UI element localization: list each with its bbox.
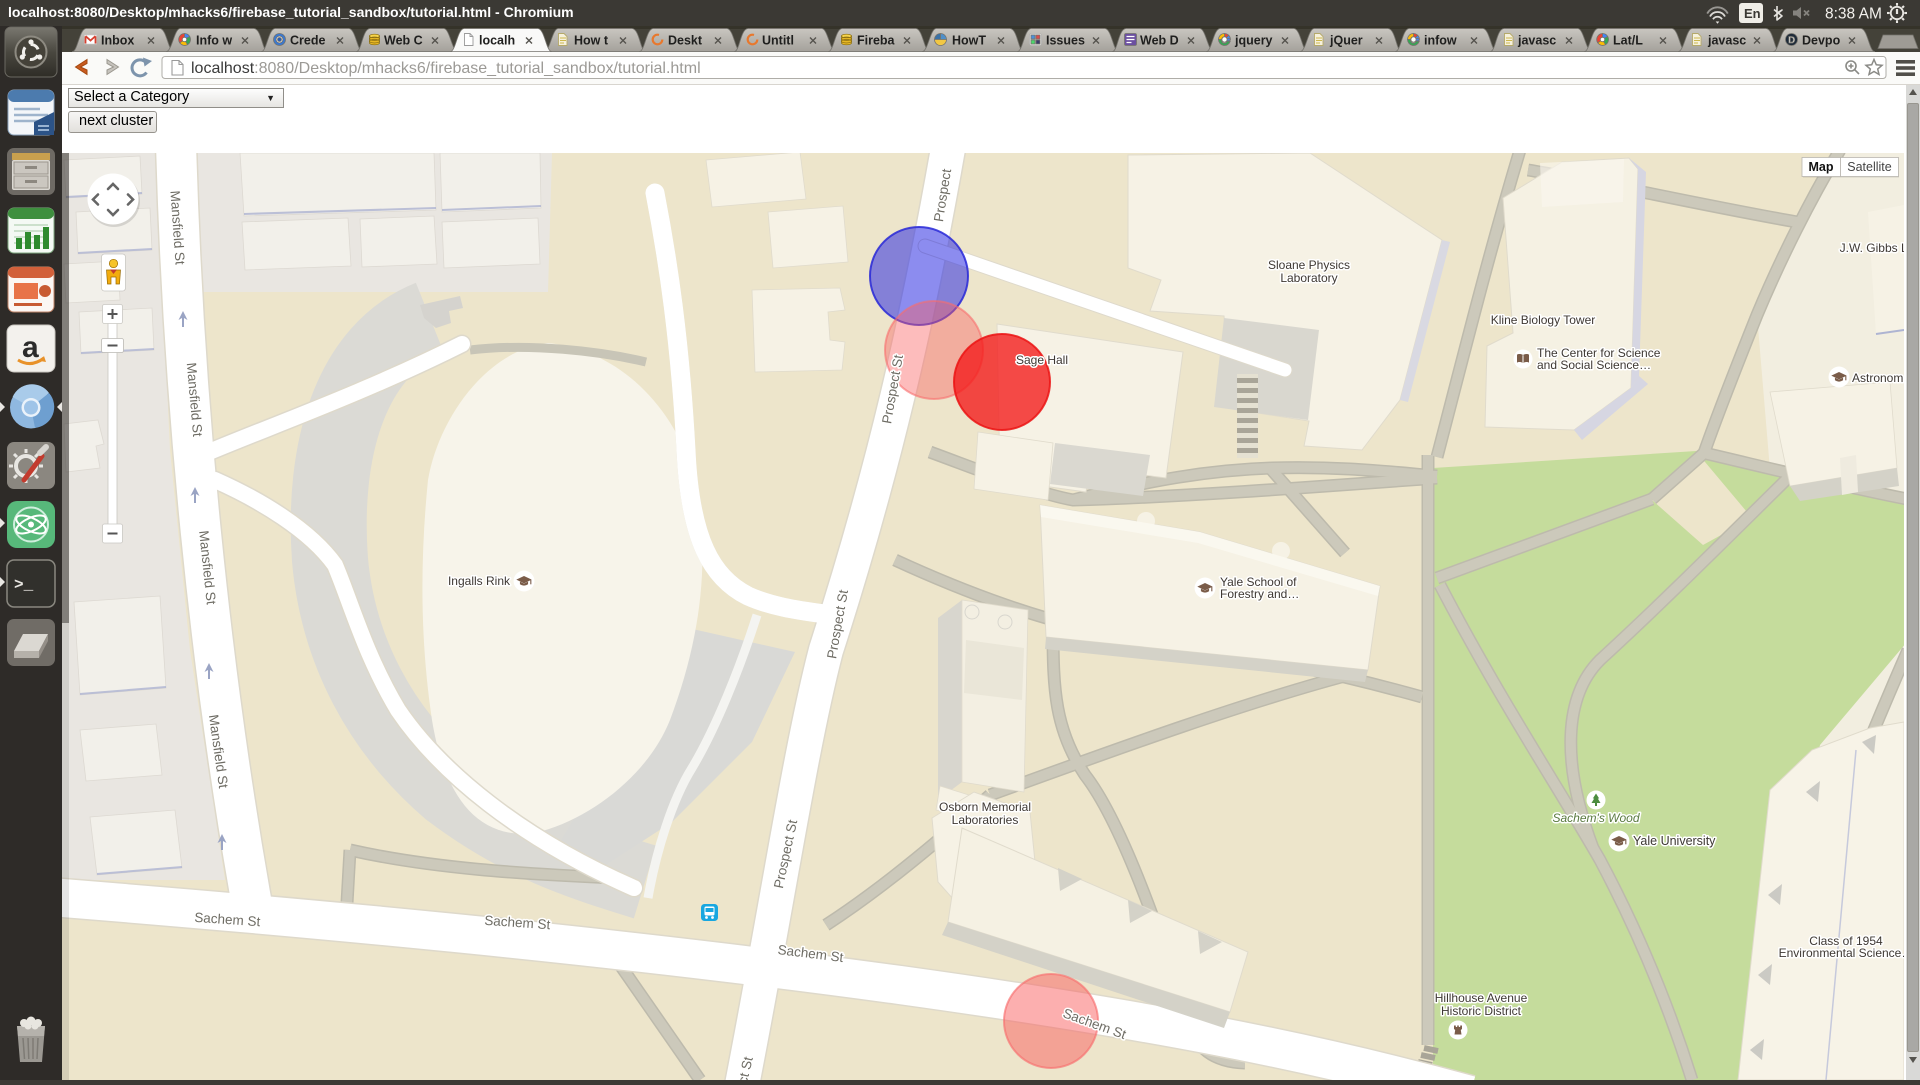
svg-text:Kline Biology Tower: Kline Biology Tower: [1491, 313, 1596, 327]
svg-text:En: En: [1744, 6, 1761, 21]
svg-text:javasc: javasc: [1517, 34, 1556, 48]
svg-text:HowT: HowT: [952, 34, 986, 48]
svg-text:Untitl: Untitl: [762, 34, 794, 48]
svg-text:Devpo: Devpo: [1802, 34, 1841, 48]
svg-text:Map: Map: [1809, 160, 1834, 174]
svg-text:Web C: Web C: [384, 34, 423, 48]
svg-text:a: a: [22, 331, 39, 364]
svg-text:Sloane Physics: Sloane Physics: [1268, 258, 1350, 272]
svg-text:Issues: Issues: [1046, 34, 1085, 48]
svg-text:>_: >_: [14, 576, 34, 594]
svg-text:Osborn Memorial: Osborn Memorial: [939, 800, 1031, 814]
svg-text:Lat/L: Lat/L: [1613, 34, 1643, 48]
svg-text:Deskt: Deskt: [668, 34, 703, 48]
svg-text:Satellite: Satellite: [1847, 160, 1892, 174]
svg-text:Yale University: Yale University: [1633, 834, 1716, 848]
svg-text:Inbox: Inbox: [101, 34, 134, 48]
svg-text:Info w: Info w: [196, 34, 232, 48]
svg-text:Crede: Crede: [290, 34, 325, 48]
svg-text:Hillhouse Avenue: Hillhouse Avenue: [1435, 991, 1528, 1005]
svg-text:Fireba: Fireba: [857, 34, 896, 48]
svg-text:Web D: Web D: [1140, 34, 1179, 48]
svg-text:How t: How t: [574, 34, 609, 48]
svg-text:infow: infow: [1424, 34, 1457, 48]
svg-text:Sachem's Wood: Sachem's Wood: [1553, 811, 1640, 825]
svg-text:Forestry and…: Forestry and…: [1220, 587, 1299, 601]
svg-text:Laboratory: Laboratory: [1280, 271, 1337, 285]
svg-text:javasc: javasc: [1707, 34, 1746, 48]
svg-text:localhost:8080/Desktop/mhacks6: localhost:8080/Desktop/mhacks6/firebase_…: [191, 60, 701, 77]
svg-text:Historic District: Historic District: [1441, 1004, 1522, 1018]
svg-text:jquery: jquery: [1234, 34, 1273, 48]
svg-text:Ingalls Rink: Ingalls Rink: [448, 574, 511, 588]
svg-text:Laboratories: Laboratories: [952, 813, 1019, 827]
svg-text:J.W. Gibbs La: J.W. Gibbs La: [1840, 241, 1904, 255]
svg-text:localh: localh: [479, 34, 515, 48]
svg-text:Astronom: Astronom: [1852, 371, 1903, 385]
svg-text:Sage Hall: Sage Hall: [1016, 353, 1068, 367]
svg-text:8:38 AM: 8:38 AM: [1825, 6, 1882, 23]
svg-text:and Social Science…: and Social Science…: [1537, 358, 1651, 372]
svg-text:jQuer: jQuer: [1329, 34, 1363, 48]
svg-text:Environmental Science…: Environmental Science…: [1779, 946, 1904, 960]
